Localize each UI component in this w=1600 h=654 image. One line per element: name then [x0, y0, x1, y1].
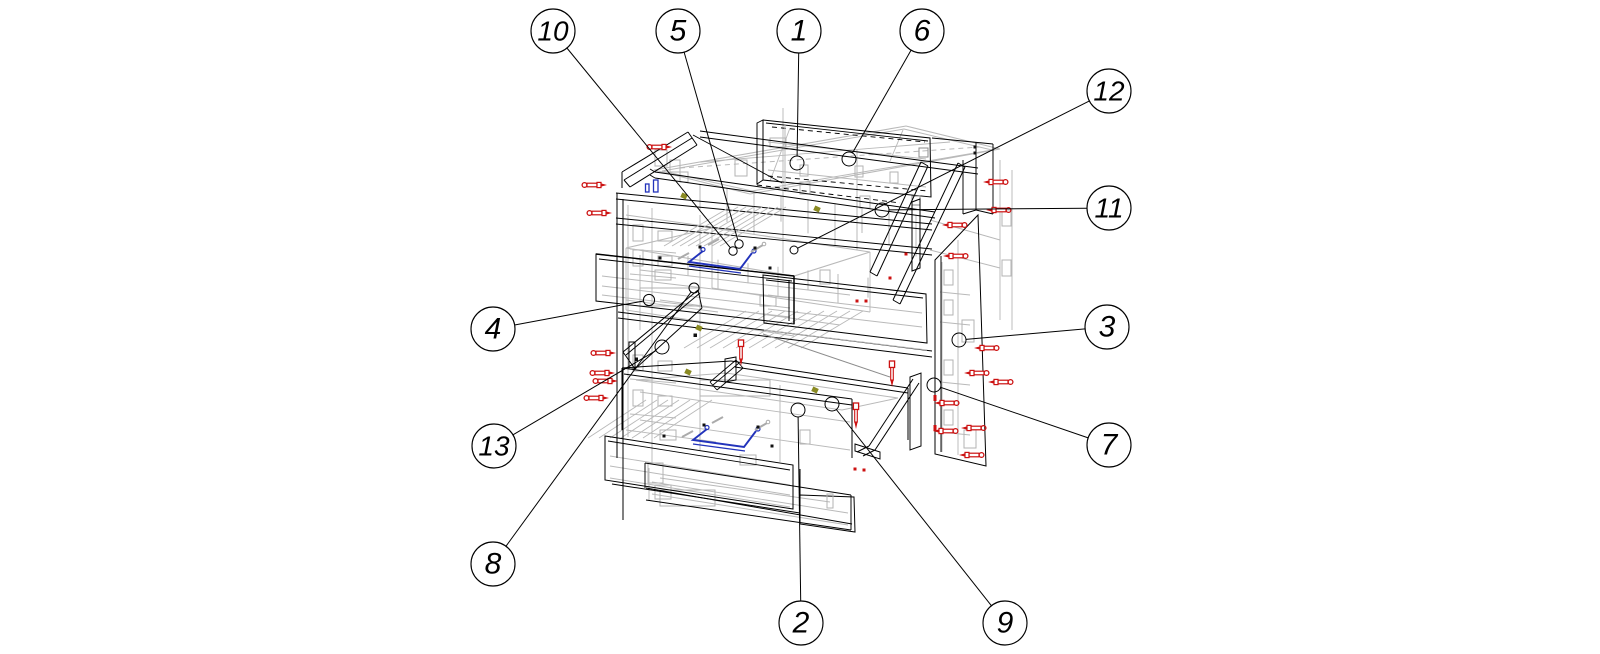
svg-text:8: 8	[485, 548, 502, 581]
svg-text:11: 11	[1094, 193, 1123, 224]
svg-text:10: 10	[537, 16, 569, 47]
svg-text:6: 6	[914, 15, 931, 48]
svg-text:2: 2	[792, 607, 810, 640]
svg-text:3: 3	[1099, 311, 1116, 344]
svg-text:5: 5	[670, 15, 687, 48]
svg-text:13: 13	[478, 431, 510, 462]
svg-text:7: 7	[1101, 429, 1119, 462]
svg-text:1: 1	[791, 15, 808, 48]
svg-text:4: 4	[485, 313, 502, 346]
svg-text:9: 9	[997, 607, 1014, 640]
svg-text:12: 12	[1093, 76, 1125, 107]
